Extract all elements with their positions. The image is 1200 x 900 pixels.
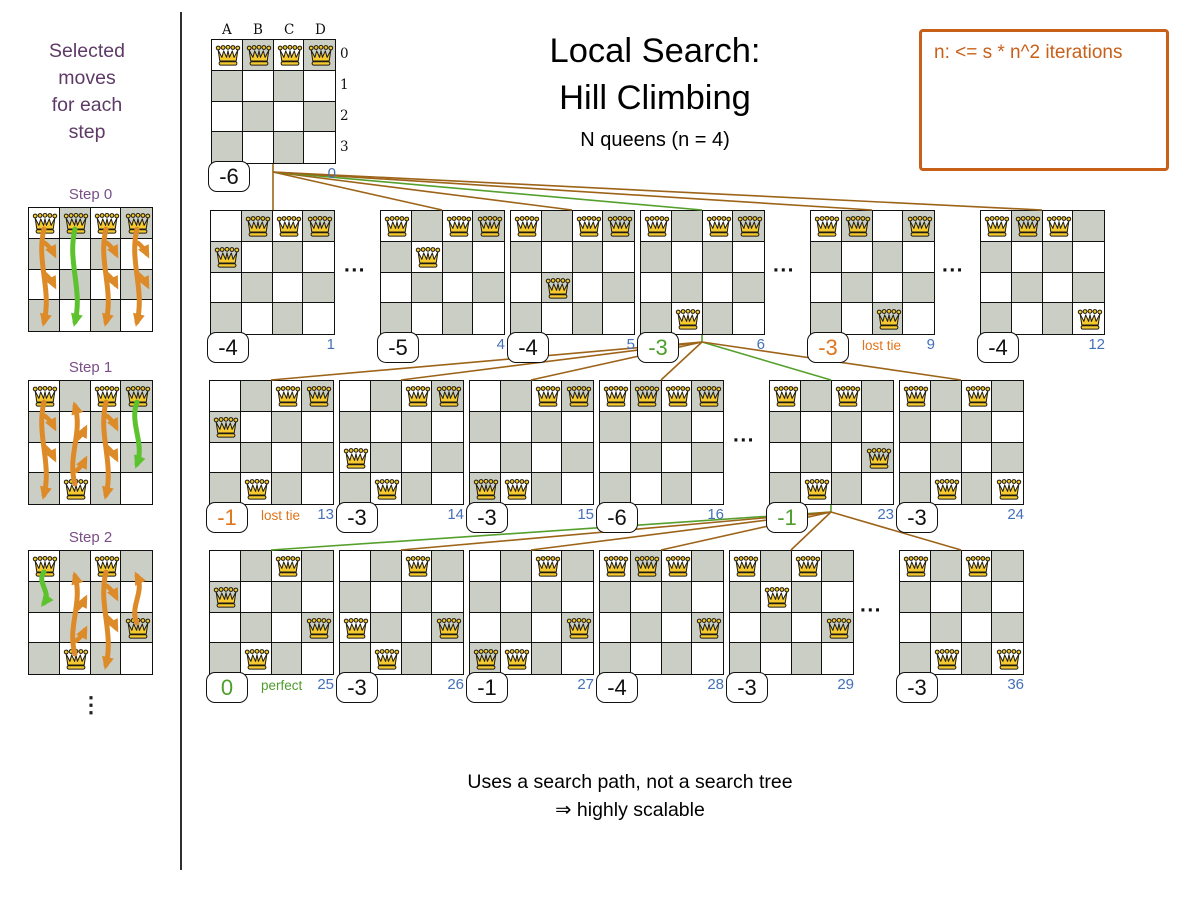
board-index: 5: [510, 336, 635, 353]
board-index: 27: [469, 676, 594, 693]
board-index: 9: [810, 336, 935, 353]
connector-lines: [0, 0, 1200, 900]
board-index: 15: [469, 506, 594, 523]
board-index: 26: [339, 676, 464, 693]
board-index: 4: [380, 336, 505, 353]
board-index: 25: [209, 676, 334, 693]
board-index: 28: [599, 676, 724, 693]
board-index: 36: [899, 676, 1024, 693]
board-index: 24: [899, 506, 1024, 523]
board-index: 29: [729, 676, 854, 693]
slide: Selected moves for each step Local Searc…: [0, 0, 1200, 900]
board-index: 1: [210, 336, 335, 353]
board-index: 13: [209, 506, 334, 523]
board-index: 23: [769, 506, 894, 523]
board-index: 0: [211, 165, 336, 182]
board-index: 16: [599, 506, 724, 523]
board-index: 6: [640, 336, 765, 353]
board-index: 14: [339, 506, 464, 523]
board-index: 12: [980, 336, 1105, 353]
